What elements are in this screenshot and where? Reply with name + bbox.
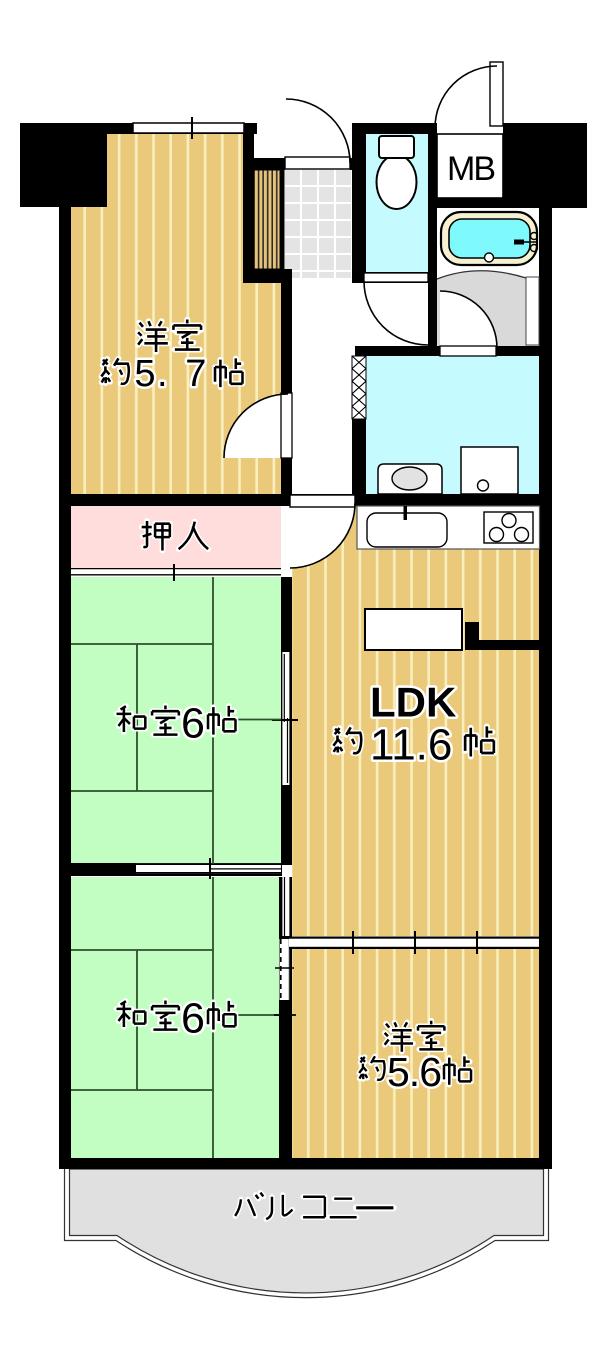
svg-text:5.: 5. [134, 353, 169, 395]
svg-text:7: 7 [185, 353, 206, 395]
svg-text:6: 6 [181, 700, 205, 748]
svg-text:MB: MB [447, 150, 494, 188]
svg-text:11.6: 11.6 [370, 721, 452, 770]
svg-text:5.6: 5.6 [387, 1049, 441, 1095]
svg-text:6: 6 [181, 995, 205, 1043]
svg-text:LDK: LDK [370, 679, 456, 726]
